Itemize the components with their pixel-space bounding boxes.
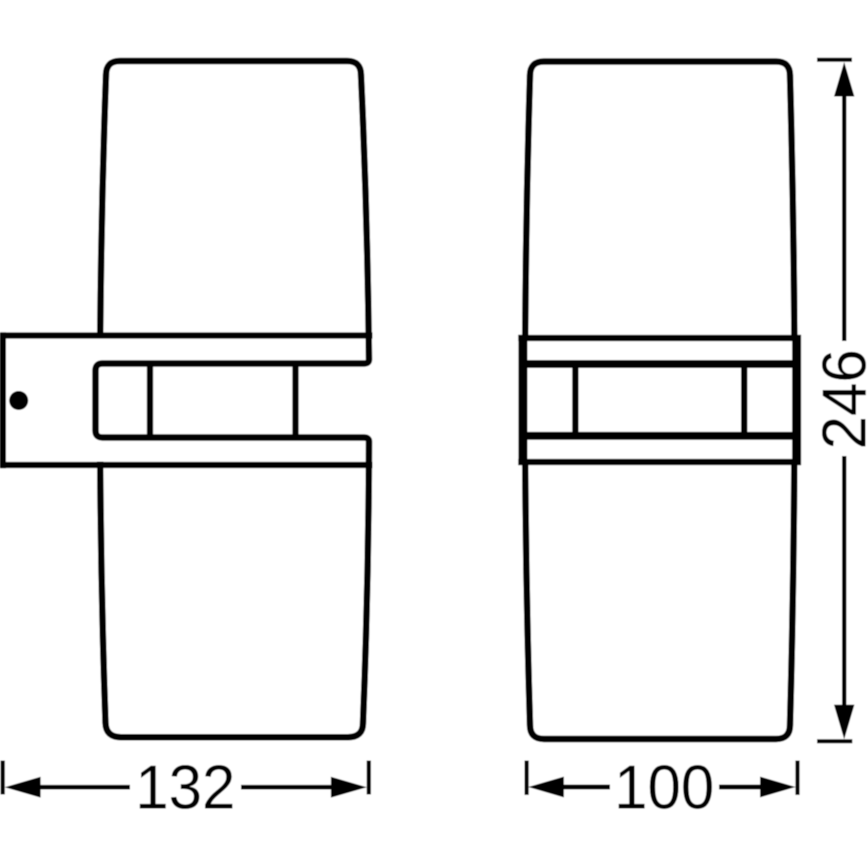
svg-text:246: 246 [810, 349, 868, 449]
svg-text:100: 100 [614, 753, 714, 822]
svg-text:132: 132 [135, 753, 235, 822]
